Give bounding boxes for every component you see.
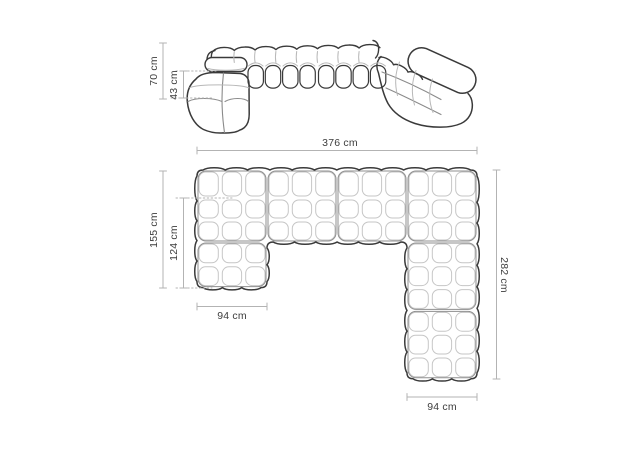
sofa-front-inner-seams [188,52,441,133]
top-view-drawing [195,168,480,381]
dim-label-total-height: 70 cm [148,56,160,86]
dim-label-right-arm-width: 94 cm [427,401,457,413]
dim-label-left-arm-width: 94 cm [217,310,247,322]
dim-label-left-inner-depth: 124 cm [168,225,180,261]
dim-label-total-width: 376 cm [322,137,358,149]
front-view-drawing [187,41,476,133]
sofa-dimensions-diagram: 70 cm 43 cm 376 cm 155 cm 124 cm 94 cm 2… [0,0,640,452]
sofa-front-outline [187,41,476,133]
plan-tuft-cells [199,172,475,377]
dim-label-right-depth: 282 cm [498,257,510,293]
dim-label-seat-height: 43 cm [168,70,180,100]
diagram-artwork [0,0,640,452]
dim-label-left-depth: 155 cm [148,212,160,248]
